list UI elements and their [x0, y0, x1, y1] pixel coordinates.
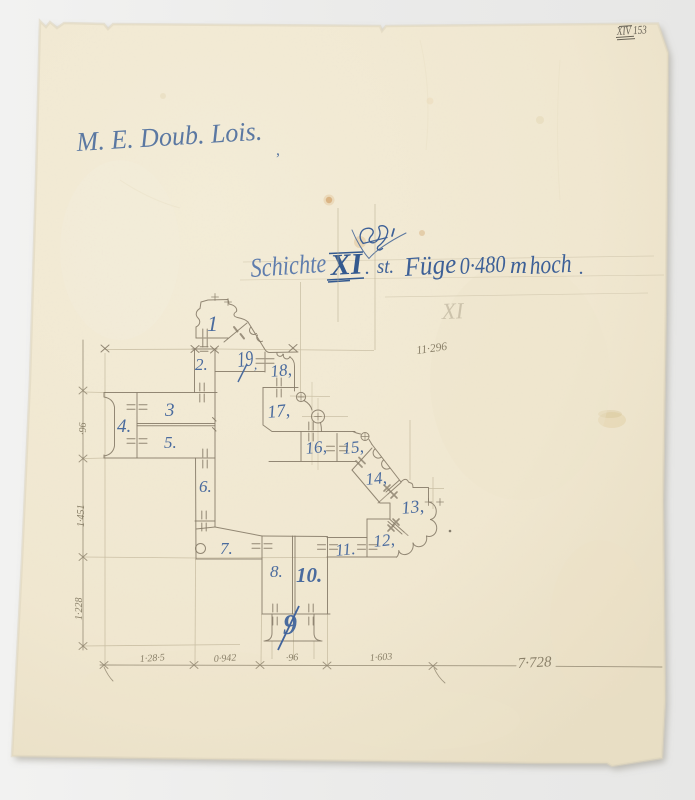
svg-text:14,: 14,: [364, 468, 387, 489]
svg-text:16,: 16,: [304, 437, 327, 458]
svg-text:hoch: hoch: [529, 249, 572, 280]
svg-text:XI: XI: [440, 298, 465, 324]
svg-text:11.: 11.: [334, 539, 356, 560]
svg-text:17,: 17,: [266, 400, 290, 422]
svg-text:st.: st.: [377, 254, 394, 278]
svg-text:.: .: [579, 257, 584, 279]
svg-text:5.: 5.: [164, 433, 177, 452]
svg-text:18,: 18,: [269, 360, 292, 381]
svg-text:6.: 6.: [199, 477, 212, 496]
svg-text:Schichte: Schichte: [249, 248, 327, 283]
svg-text:7.: 7.: [220, 539, 233, 558]
svg-text:12,: 12,: [372, 530, 395, 551]
svg-text:1·228: 1·228: [74, 598, 85, 621]
svg-text:13,: 13,: [400, 496, 424, 518]
svg-text:1·451: 1·451: [76, 505, 87, 528]
svg-text:XIV 153: XIV 153: [616, 22, 647, 38]
svg-text:7·728: 7·728: [517, 654, 552, 672]
svg-text:1·603: 1·603: [369, 651, 392, 664]
svg-text:4.: 4.: [117, 416, 131, 437]
svg-text:1: 1: [207, 311, 218, 336]
svg-text:,: ,: [254, 357, 257, 372]
svg-text:m: m: [510, 253, 527, 279]
svg-text:1·28·5: 1·28·5: [139, 652, 165, 665]
svg-text:0·942: 0·942: [213, 652, 236, 665]
svg-text:3: 3: [164, 400, 175, 421]
svg-text:·96: ·96: [78, 423, 89, 436]
svg-text:·96: ·96: [285, 652, 298, 664]
svg-text:10.: 10.: [296, 563, 322, 587]
svg-text:15,: 15,: [341, 437, 364, 458]
svg-text:8.: 8.: [270, 562, 283, 581]
svg-text:.: .: [365, 257, 370, 279]
svg-text:2.: 2.: [195, 355, 208, 374]
svg-text:0·480: 0·480: [459, 252, 506, 280]
svg-text:Füge: Füge: [402, 248, 457, 282]
